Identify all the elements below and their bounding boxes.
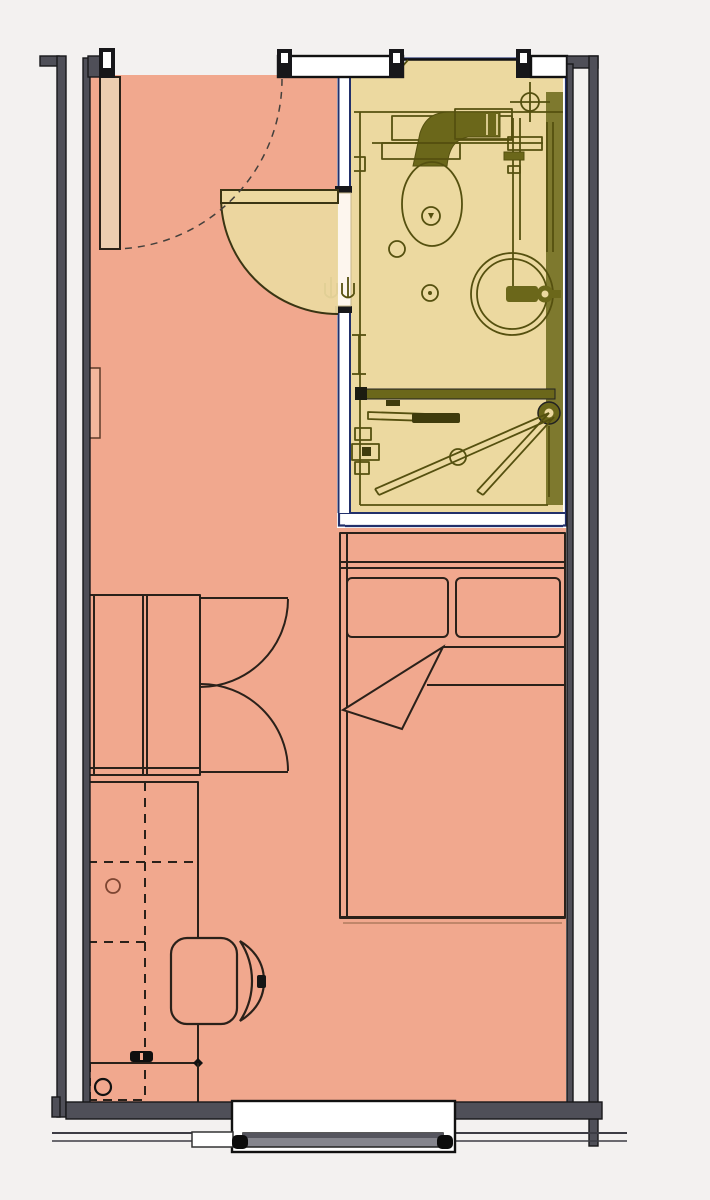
shower-rail-handle <box>412 413 460 423</box>
floor-plan-drawing <box>0 0 710 1200</box>
pod-top-cap-core <box>520 53 527 63</box>
shower-threshold <box>357 389 555 399</box>
entry-door-leaf <box>100 77 120 249</box>
window-sill-step <box>192 1132 233 1147</box>
window <box>192 1101 455 1152</box>
wall-bottom-left-band <box>66 1102 232 1119</box>
wall-bottom-right-band <box>452 1102 602 1119</box>
wall-right-inner <box>567 64 573 1108</box>
entry-frame-bracket-core <box>103 52 111 68</box>
faucet-knob-dot <box>542 291 549 298</box>
wall-left-flange <box>40 56 59 66</box>
floor-plan-canvas <box>0 0 710 1200</box>
pod-top-band <box>393 60 516 77</box>
window-frame-end-left <box>232 1135 248 1149</box>
riser-valve-1 <box>504 152 524 160</box>
pod-bottom-band <box>345 513 563 526</box>
wall-top-cap-left-core <box>281 53 288 63</box>
faucet-body <box>506 286 538 302</box>
wall-bottom-left-stub <box>52 1097 60 1117</box>
faucet-stub <box>552 290 561 298</box>
wall-left-outer <box>57 56 66 1117</box>
chair-seat <box>171 938 237 1024</box>
wall-top-cap-right-core <box>393 53 400 63</box>
office-chair <box>171 938 266 1024</box>
threshold-end-block <box>355 387 367 400</box>
window-frame-bar-shade <box>243 1133 443 1138</box>
wall-right-outer <box>589 56 598 1146</box>
wall-left-inner <box>83 58 90 1108</box>
wall-top-right-segment <box>531 56 567 77</box>
desk-outlet-slot <box>140 1053 143 1060</box>
chair-knob <box>257 975 266 988</box>
window-frame-end-right <box>437 1135 453 1149</box>
wall-top-segment <box>278 56 403 77</box>
floor-drain-2-dot <box>428 291 432 295</box>
fold-seat-pin <box>362 447 371 456</box>
rail-clip <box>386 400 400 406</box>
